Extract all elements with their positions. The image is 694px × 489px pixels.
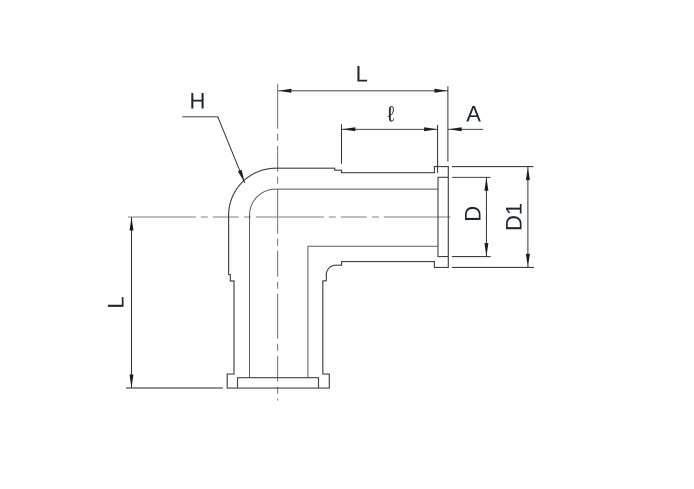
svg-text:L: L [356,62,368,87]
svg-text:A: A [466,101,481,126]
svg-text:L: L [104,296,129,308]
svg-text:D: D [461,206,486,222]
svg-text:ℓ: ℓ [387,102,395,127]
svg-text:H: H [190,88,206,113]
svg-text:D1: D1 [501,203,526,231]
